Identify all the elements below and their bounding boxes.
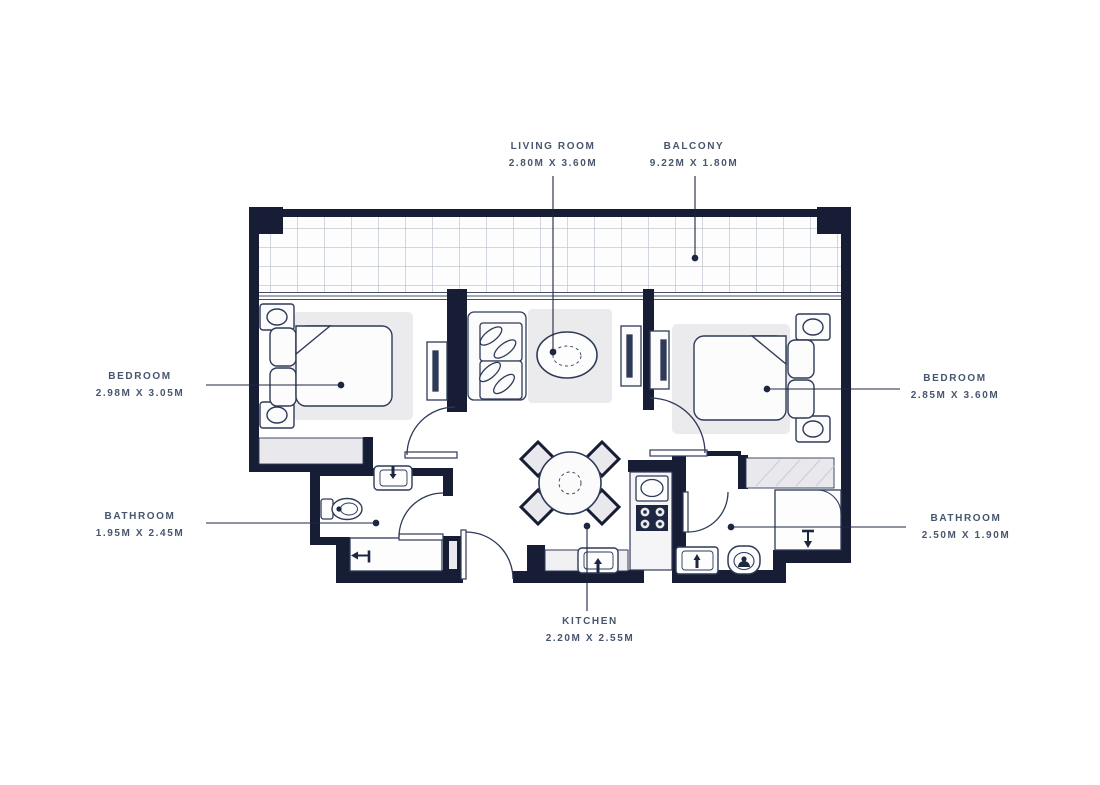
entrance-door — [461, 530, 513, 579]
door-arc — [399, 493, 443, 540]
pillow — [270, 328, 296, 366]
room-name: BATHROOM — [922, 510, 1011, 527]
floor-plan-page: LIVING ROOM 2.80M X 3.60M BALCONY 9.22M … — [0, 0, 1100, 785]
room-dims: 2.50M X 1.90M — [922, 527, 1011, 544]
top-wall — [249, 209, 851, 217]
toilet-icon — [728, 546, 760, 574]
room-name: BALCONY — [650, 138, 739, 155]
label-bathroom-left: BATHROOM 1.95M X 2.45M — [96, 508, 185, 542]
sink-icon — [676, 547, 718, 574]
dining-table-icon — [539, 452, 601, 514]
label-balcony: BALCONY 9.22M X 1.80M — [650, 138, 739, 172]
label-bathroom-right: BATHROOM 2.50M X 1.90M — [922, 510, 1011, 544]
pillow — [270, 368, 296, 406]
room-dims: 9.22M X 1.80M — [650, 155, 739, 172]
room-dims: 2.98M X 3.05M — [96, 385, 185, 402]
tv-unit-icon — [650, 331, 669, 389]
label-bedroom-left: BEDROOM 2.98M X 3.05M — [96, 368, 185, 402]
balcony — [249, 207, 851, 300]
room-dims: 2.85M X 3.60M — [911, 387, 1000, 404]
tv-unit-icon — [621, 326, 641, 386]
pillow — [788, 380, 814, 418]
sofa-icon — [468, 312, 526, 400]
closet — [746, 458, 834, 488]
label-living-room: LIVING ROOM 2.80M X 3.60M — [509, 138, 598, 172]
label-kitchen: KITCHEN 2.20M X 2.55M — [546, 613, 635, 647]
shower — [775, 490, 841, 550]
bedroom-left — [259, 304, 457, 464]
room-dims: 2.20M X 2.55M — [546, 630, 635, 647]
door-arc — [683, 492, 728, 532]
stove-icon — [636, 505, 668, 531]
sink-icon — [374, 466, 412, 490]
label-bedroom-right: BEDROOM 2.85M X 3.60M — [911, 370, 1000, 404]
balcony-window-line — [259, 293, 841, 300]
room-name: LIVING ROOM — [509, 138, 598, 155]
room-name: BEDROOM — [911, 370, 1000, 387]
coffee-table-icon — [537, 332, 597, 378]
room-name: BATHROOM — [96, 508, 185, 525]
dining-area — [521, 442, 619, 524]
kitchen-sink-icon — [636, 476, 668, 501]
room-name: BEDROOM — [96, 368, 185, 385]
room-dims: 2.80M X 3.60M — [509, 155, 598, 172]
pillow — [788, 340, 814, 378]
tv-unit-icon — [427, 342, 447, 400]
washing-machine — [449, 541, 457, 569]
living-room — [468, 309, 641, 403]
balcony-tile-grid — [259, 217, 841, 293]
toilet-icon — [321, 499, 362, 520]
closet — [259, 438, 363, 464]
room-dims: 1.95M X 2.45M — [96, 525, 185, 542]
counter-sink-icon — [578, 548, 618, 573]
room-name: KITCHEN — [546, 613, 635, 630]
